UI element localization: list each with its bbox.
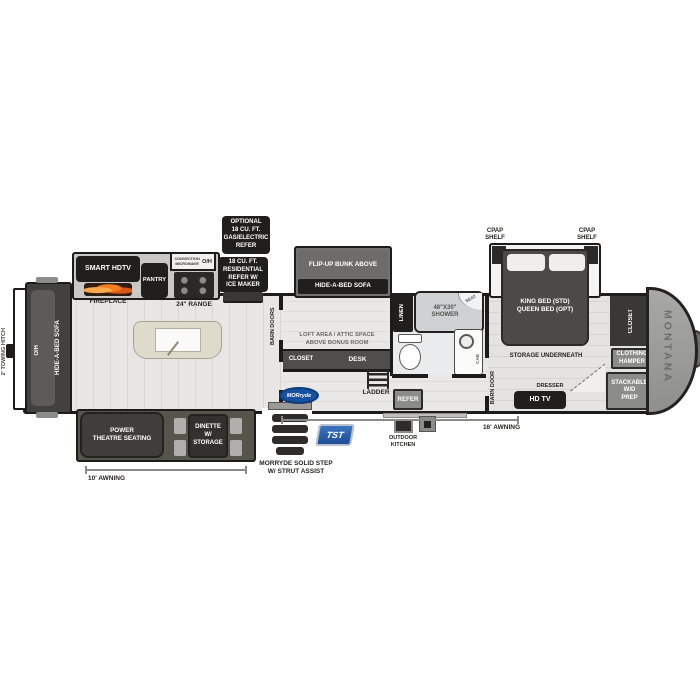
hdtv-cabinet: HD TV bbox=[514, 391, 566, 409]
optional-refer-callout: OPTIONAL 18 CU. FT. GAS/ELECTRIC REFER bbox=[222, 216, 270, 254]
entry-step bbox=[272, 436, 308, 444]
toilet-tank-icon bbox=[398, 334, 422, 343]
awning-16-label: 16' AWNING bbox=[448, 424, 520, 433]
bedroom-closet-label: CLOSET bbox=[628, 309, 634, 333]
morryde-logo: MORryde bbox=[279, 387, 319, 404]
shower-label: 48"X30" SHOWER bbox=[418, 298, 472, 326]
king-bed-label: KING BED (STD) QUEEN BED (OPT) bbox=[501, 294, 589, 318]
pillow-icon bbox=[549, 254, 585, 271]
awning-10-end-tick bbox=[85, 466, 87, 474]
awning-16-end-tick bbox=[281, 416, 283, 424]
slide-handle bbox=[36, 412, 58, 418]
fireplace-label: FIREPLACE bbox=[72, 297, 144, 307]
bath-bottom-wall bbox=[392, 374, 428, 378]
cpap-shelf-right-label: CPAP SHELF bbox=[569, 227, 605, 243]
dinette-table: DINETTE W/ STORAGE bbox=[188, 414, 228, 458]
towing-hitch-label-wrap: 2' TOWING HITCH bbox=[0, 310, 9, 394]
slide-handle bbox=[36, 277, 58, 283]
flip-up-bunk-label: FLIP-UP BUNK ABOVE bbox=[298, 250, 388, 278]
outdoor-kitchen-box bbox=[394, 419, 413, 433]
convection-microwave-label: CONVECTION MICROWAVE bbox=[174, 257, 200, 266]
awning-10-line bbox=[85, 469, 247, 471]
bath-bottom-wall bbox=[452, 374, 486, 378]
awning-16-end-tick bbox=[517, 416, 519, 424]
outdoor-refer: REFER bbox=[393, 389, 423, 410]
loft-area-label: LOFT AREA / ATTIC SPACE ABOVE BONUS ROOM bbox=[284, 331, 390, 348]
montana-brand-label: MONTANA bbox=[661, 300, 675, 395]
dinette-chair bbox=[230, 440, 242, 456]
rear-sofa-label-wrap: HIDE-A-BED SOFA bbox=[49, 295, 65, 401]
towing-hitch-label: 2' TOWING HITCH bbox=[1, 328, 8, 376]
entry-step bbox=[276, 447, 304, 455]
dinette-chair bbox=[174, 418, 186, 434]
range-label: 24" RANGE bbox=[164, 300, 224, 310]
cab-label: CAB bbox=[475, 354, 480, 364]
hookup-port-icon bbox=[424, 421, 431, 428]
pillow-icon bbox=[507, 254, 545, 271]
dinette-chair bbox=[230, 418, 242, 434]
bonus-room-wall bbox=[279, 296, 283, 310]
awning-16-line bbox=[281, 419, 519, 421]
theatre-seating: POWER THEATRE SEATING bbox=[80, 412, 164, 458]
bonus-closet-label: CLOSET bbox=[285, 349, 317, 369]
morryde-step-label: MORRYDE SOLID STEP W/ STRUT ASSIST bbox=[240, 458, 352, 478]
entry-step bbox=[272, 425, 308, 433]
fireplace-flame-icon bbox=[84, 283, 132, 296]
pantry-cabinet: PANTRY bbox=[141, 263, 168, 298]
vanity-cabinet-label: CAB bbox=[472, 347, 482, 371]
range-cooktop-icon bbox=[174, 272, 214, 298]
bunk-hide-a-bed-sofa: HIDE-A-BED SOFA bbox=[298, 279, 388, 294]
rear-sofa-label: HIDE-A-BED SOFA bbox=[54, 320, 61, 375]
tst-logo: TST bbox=[315, 424, 355, 446]
smart-hdtv-cabinet: SMART HDTV bbox=[76, 256, 140, 282]
microwave-overhead-label: O/H bbox=[202, 259, 212, 265]
rear-overhead-label: O/H bbox=[34, 345, 40, 356]
linen-cabinet: LINEN bbox=[393, 294, 413, 332]
bedroom-wall bbox=[485, 296, 489, 358]
awning-10-label: 10' AWNING bbox=[88, 475, 198, 485]
barn-door-label: BARN DOOR bbox=[490, 371, 497, 404]
toilet-bowl-icon bbox=[399, 344, 421, 370]
island-sink bbox=[155, 328, 201, 352]
rear-overhead-wrap: O/H bbox=[30, 330, 44, 370]
residential-refer-callout: 18 CU. FT. RESIDENTIAL REFER W/ ICE MAKE… bbox=[218, 257, 268, 292]
cpap-shelf-left-label: CPAP SHELF bbox=[477, 227, 513, 243]
desk-label: DESK bbox=[330, 349, 385, 369]
barn-doors-label: BARN DOORS bbox=[268, 300, 279, 352]
barn-door-label-wrap: BARN DOOR bbox=[488, 364, 498, 412]
rv-floorplan-diagram: BARN DOORS CLOSET DESK LOFT AREA / ATTIC… bbox=[0, 0, 700, 700]
convection-microwave-box: CONVECTION MICROWAVE O/H bbox=[170, 252, 216, 271]
outdoor-kitchen-label: OUTDOOR KITCHEN bbox=[376, 434, 430, 450]
ladder-icon bbox=[367, 370, 389, 389]
storage-underneath-label: STORAGE UNDERNEATH bbox=[494, 352, 598, 362]
linen-label: LINEN bbox=[399, 304, 407, 321]
dinette-chair bbox=[174, 440, 186, 456]
refrigerator-icon bbox=[223, 292, 263, 303]
